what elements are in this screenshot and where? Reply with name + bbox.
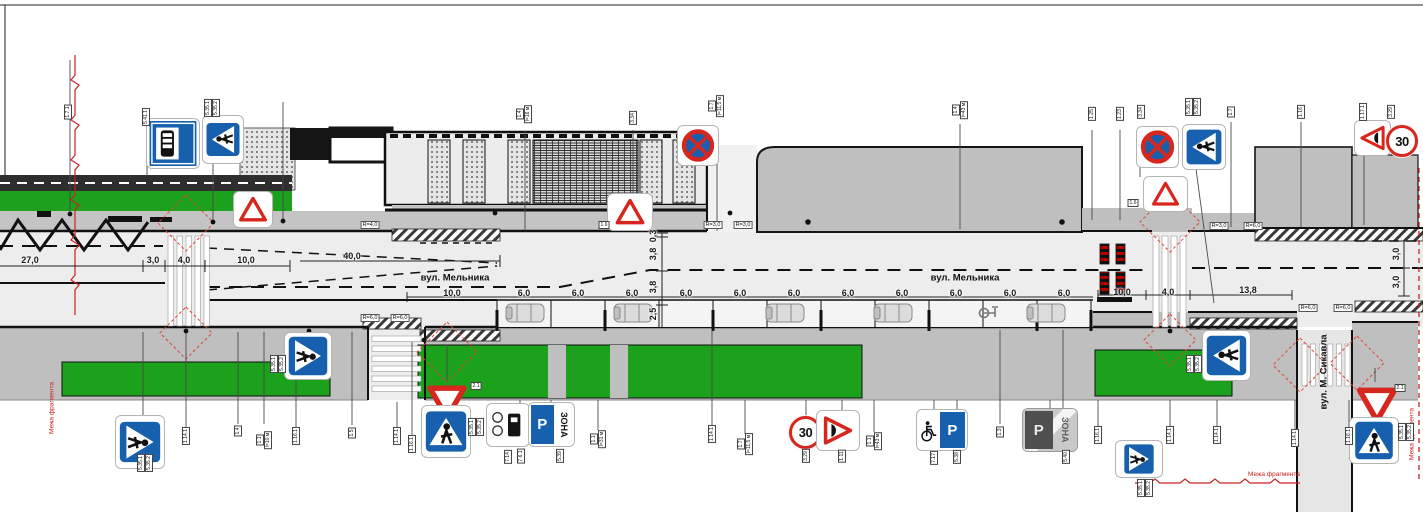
pedestrian-crossing-icon bbox=[202, 122, 245, 158]
sign-code-label: 5.35.2 bbox=[145, 454, 153, 472]
sign-code-label: l=43 м bbox=[960, 101, 968, 119]
traffic-plan-canvas: 30 P ЗОНА 30 bbox=[0, 0, 1423, 512]
pedestrian-crossing-icon bbox=[1184, 128, 1224, 166]
sign-code-label: 1.4 bbox=[234, 426, 242, 437]
wheelchair-icon bbox=[919, 412, 940, 448]
parking-letter: P bbox=[1034, 422, 1044, 439]
no-stopping-sign bbox=[678, 126, 718, 165]
speed-bump-warning-sign bbox=[817, 411, 859, 450]
speed-limit-value: 30 bbox=[799, 425, 812, 440]
sign-code-label: 5.35.1 bbox=[1398, 423, 1406, 441]
dimension-label: 6,0 bbox=[1058, 288, 1071, 298]
cross-street-name-label: вул. М. Сикавла bbox=[1319, 334, 1330, 409]
sign-code-label: 5.40 bbox=[1062, 450, 1070, 464]
dimension-label: 3,8 bbox=[648, 281, 658, 294]
radius-label: R=6,0 bbox=[1299, 304, 1318, 312]
dimension-label: 6,0 bbox=[518, 288, 531, 298]
sign-code-label: 1.3 bbox=[996, 427, 1004, 438]
dimension-label: 40,0 bbox=[343, 251, 361, 261]
dimension-label: 6,0 bbox=[1004, 288, 1017, 298]
dimension-label: 3,0 bbox=[1391, 276, 1401, 289]
sign-code-label: 5.38 bbox=[953, 450, 961, 464]
sign-code-label: 1.25 bbox=[1088, 107, 1096, 121]
sign-code-label: 1.16.1 bbox=[292, 427, 300, 445]
dimension-label: 6,0 bbox=[842, 288, 855, 298]
sign-code-label: 5.35.1 bbox=[137, 454, 145, 472]
no-stopping-icon bbox=[1139, 129, 1176, 165]
parking-letter: P bbox=[537, 416, 547, 433]
warning-triangle-icon bbox=[610, 196, 650, 228]
sign-code-label: 1.1 bbox=[866, 436, 874, 447]
pedestrian-crossing-icon bbox=[424, 408, 468, 455]
sign-code-label: 1.5 bbox=[348, 428, 356, 439]
speed-bump-icon bbox=[1357, 123, 1388, 153]
no-stopping-sign bbox=[1137, 127, 1178, 167]
sign-code-label: 5.35.2 bbox=[1145, 479, 1153, 497]
sign-code-label: 1.11 bbox=[838, 449, 846, 462]
pedestrian-crossing-sign bbox=[1116, 441, 1162, 477]
sign-code-label: 1.7 bbox=[708, 101, 716, 112]
dimension-label: 6,0 bbox=[572, 288, 585, 298]
sign-code-label: 5.35.1 bbox=[468, 418, 476, 436]
sign-code-label: 1.7 bbox=[1227, 107, 1235, 118]
pedestrian-crossing-icon bbox=[1123, 438, 1155, 480]
sign-code-label: 1.6 bbox=[599, 221, 610, 229]
sign-code-label: 5.35.1 bbox=[270, 355, 278, 373]
sign-code-label: 1.6 bbox=[1128, 199, 1139, 207]
sign-code-label: l=16 м bbox=[524, 105, 532, 123]
sign-code-label: l=43 м bbox=[874, 432, 882, 450]
dimension-label: 3,0 bbox=[1391, 248, 1401, 261]
sign-code-label: 1.14.1 bbox=[1291, 429, 1299, 447]
sign-code-label: 5.35.2 bbox=[1193, 98, 1201, 116]
sign-code-label: 1.4 bbox=[516, 109, 524, 120]
sign-code-label: 1.14.1 bbox=[1166, 426, 1174, 444]
pedestrian-crossing-icon bbox=[287, 335, 329, 377]
sign-code-label: 7.6.1 bbox=[517, 448, 525, 463]
sign-code-label: l=11,5 м bbox=[716, 95, 724, 117]
sign-code-label: 5.35.2 bbox=[278, 355, 286, 373]
dimension-label: 3,0 bbox=[147, 255, 160, 265]
sign-code-label: 3.29 bbox=[802, 449, 810, 463]
sign-code-label: 1.17.1 bbox=[1359, 103, 1367, 121]
sign-code-label: 3.34 bbox=[1137, 105, 1145, 119]
warning-triangle-sign bbox=[608, 194, 652, 230]
sign-code-label: 5.35.2 bbox=[1406, 423, 1414, 441]
speed-bump-warning-sign bbox=[1355, 121, 1390, 155]
sign-code-label: 5.35.1 bbox=[1186, 355, 1194, 373]
sign-code-label: 5.35.1 bbox=[1137, 479, 1145, 497]
pedestrian-crossing-icon bbox=[1204, 334, 1249, 377]
warning-triangle-icon bbox=[1146, 179, 1185, 209]
warning-triangle-sign bbox=[1144, 177, 1187, 211]
sign-code-label: 1.1 bbox=[590, 434, 598, 445]
sign-code-label: 2.1 bbox=[471, 382, 482, 390]
sign-code-label: 1.16 bbox=[1297, 105, 1305, 119]
sign-code-label: 1.16.1 bbox=[1345, 427, 1353, 445]
sign-code-label: l=31 м bbox=[598, 430, 606, 448]
parking-zone-sign: P ЗОНА bbox=[529, 403, 574, 446]
sign-code-label: 5.35.1 bbox=[204, 99, 212, 117]
sign-code-label: 5.39 bbox=[556, 449, 564, 463]
sign-code-label: 1.7.1 bbox=[64, 104, 72, 119]
speed-limit-value: 30 bbox=[1395, 134, 1408, 149]
sign-code-label: 7.14 bbox=[504, 450, 512, 464]
radius-label: R=6,0 bbox=[361, 314, 380, 322]
sign-code-label: 5.35.2 bbox=[1194, 355, 1202, 373]
street-name-label: вул. Мельника bbox=[421, 273, 490, 284]
sign-code-label: 3.29 bbox=[1387, 105, 1395, 119]
bus-stop-sign bbox=[147, 119, 199, 168]
parking-icon: P bbox=[1025, 411, 1053, 449]
sign-code-label: l=11,5 м bbox=[745, 433, 753, 455]
sign-code-label: 1.7 bbox=[737, 439, 745, 450]
radius-label: R=6,0 bbox=[1244, 222, 1263, 230]
zone-word: ЗОНА bbox=[556, 405, 572, 444]
disabled-parking-sign: P bbox=[917, 410, 967, 450]
dimension-label: 10,0 bbox=[237, 255, 255, 265]
parking-meter-plate-sign bbox=[487, 404, 529, 446]
speed-bump-icon bbox=[819, 413, 857, 448]
dimension-label: 6,0 bbox=[734, 288, 747, 298]
dimension-label: 6,0 bbox=[788, 288, 801, 298]
dimension-label: 27,0 bbox=[21, 255, 39, 265]
fragment-boundary-label: Межа фрагмента bbox=[1248, 471, 1300, 478]
parking-icon: P bbox=[531, 405, 554, 444]
sign-code-label: 5.35.2 bbox=[212, 99, 220, 117]
sign-code-label: 1.14.1 bbox=[393, 427, 401, 445]
warning-triangle-icon bbox=[236, 194, 270, 225]
sign-code-label: 5.35.1 bbox=[1185, 98, 1193, 116]
sign-code-label: 5.41.1 bbox=[142, 108, 150, 126]
dimension-label: 6,0 bbox=[950, 288, 963, 298]
pedestrian-crossing-sign bbox=[1350, 418, 1398, 463]
dimension-label: 3,8 bbox=[648, 248, 658, 261]
fragment-boundary-label: Межа фрагмента bbox=[49, 382, 56, 434]
radius-label: R=4,0 bbox=[361, 221, 380, 229]
dimension-label: 6,0 bbox=[680, 288, 693, 298]
pedestrian-crossing-sign bbox=[203, 116, 243, 163]
radius-label: R=6,0 bbox=[1334, 304, 1353, 312]
pedestrian-crossing-icon bbox=[1352, 420, 1396, 461]
dimension-label: 4,0 bbox=[1162, 287, 1175, 297]
warning-triangle-sign bbox=[234, 192, 272, 227]
dimension-label: 6,0 bbox=[896, 288, 909, 298]
radius-label: R=3,0 bbox=[1210, 222, 1229, 230]
sign-code-label: 1.14.1 bbox=[1213, 426, 1221, 444]
radius-label: R=6,0 bbox=[391, 314, 410, 322]
street-name-label: вул. Мельника bbox=[931, 273, 1000, 284]
parking-icon: P bbox=[940, 412, 965, 448]
bus-stop-icon bbox=[149, 121, 197, 166]
dimension-label: 0,3 bbox=[648, 230, 658, 243]
sign-code-label: 3.34 bbox=[629, 111, 637, 125]
dimension-label: 2,5 bbox=[648, 308, 658, 321]
no-stopping-icon bbox=[680, 128, 716, 163]
parking-letter: P bbox=[947, 422, 957, 439]
zone-word: ЗОНА bbox=[1055, 411, 1076, 449]
parking-meter-icon bbox=[489, 406, 527, 444]
sign-code-label: 2.1 bbox=[1395, 384, 1406, 392]
sign-code-label: 1.14.1 bbox=[182, 427, 190, 445]
pedestrian-crossing-sign bbox=[285, 333, 331, 379]
pedestrian-crossing-sign bbox=[1203, 331, 1250, 380]
sign-code-label: 1.16.1 bbox=[1094, 426, 1102, 444]
sign-code-label: 1.1 bbox=[256, 435, 264, 446]
sign-code-label: 1.14.1 bbox=[708, 425, 716, 443]
dimension-label: 13,8 bbox=[1239, 285, 1257, 295]
dimension-label: 6,0 bbox=[626, 288, 639, 298]
speed-limit-30-sign: 30 bbox=[1386, 125, 1418, 157]
sign-code-label: 5.35.2 bbox=[476, 418, 484, 436]
sign-code-label: 7.17 bbox=[930, 451, 938, 465]
sign-code-label: l=10 м bbox=[264, 431, 272, 449]
radius-label: R=3,0 bbox=[734, 221, 753, 229]
dimension-label: 4,0 bbox=[178, 255, 191, 265]
dimension-label: 10,0 bbox=[443, 288, 461, 298]
pedestrian-crossing-sign bbox=[422, 406, 470, 457]
radius-label: R=3,0 bbox=[704, 221, 723, 229]
sign-code-label: 1.4 bbox=[952, 105, 960, 116]
parking-zone-end-sign: P ЗОНА bbox=[1023, 409, 1077, 451]
sign-code-label: 1.23 bbox=[1116, 107, 1124, 121]
pedestrian-crossing-sign bbox=[1183, 125, 1225, 169]
dimension-label: 10,0 bbox=[1113, 287, 1131, 297]
sign-code-label: 1.16.1 bbox=[408, 435, 416, 453]
